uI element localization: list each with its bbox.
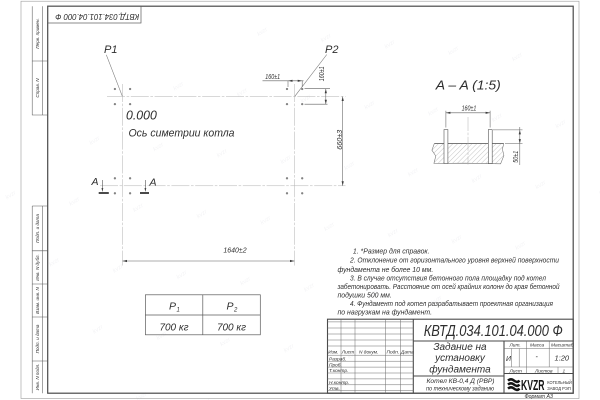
svg-text:50±1: 50±1 <box>513 151 520 163</box>
svg-text:160±1: 160±1 <box>462 105 477 112</box>
svg-text:Листов: Листов <box>534 369 553 375</box>
svg-text:P: P <box>227 301 234 313</box>
svg-text:A – A (1:5): A – A (1:5) <box>435 77 501 92</box>
svg-text:Инв. N дубл.: Инв. N дубл. <box>35 254 40 281</box>
svg-text:Масштаб: Масштаб <box>551 343 574 349</box>
svg-text:2. Отклонение от горизонтально: 2. Отклонение от горизонтального уровня … <box>349 256 559 264</box>
svg-text:660±3: 660±3 <box>337 130 344 150</box>
svg-text:1. *Размер для справок.: 1. *Размер для справок. <box>353 248 430 256</box>
svg-text:Лит.: Лит. <box>509 343 521 349</box>
svg-text:Взам. инв. N: Взам. инв. N <box>35 286 40 313</box>
svg-text:фундамента: фундамента <box>429 363 491 375</box>
svg-text:Котел КВ-0,4 Д (РВР): Котел КВ-0,4 Д (РВР) <box>427 379 495 385</box>
svg-text:ЗАВОД РЭП: ЗАВОД РЭП <box>547 386 571 391</box>
svg-text:P: P <box>169 301 176 313</box>
svg-text:Утв.: Утв. <box>329 386 340 392</box>
svg-text:фундамента не более 10 мм.: фундамента не более 10 мм. <box>338 266 434 274</box>
svg-text:КВТД.034.101.04.000 Ф: КВТД.034.101.04.000 Ф <box>55 12 139 22</box>
svg-text:P1: P1 <box>104 44 117 56</box>
svg-text:Т.контр.: Т.контр. <box>329 368 348 374</box>
svg-text:Инв. N подл.: Инв. N подл. <box>35 364 40 391</box>
svg-text:160±1: 160±1 <box>319 66 326 81</box>
svg-text:A: A <box>149 177 157 189</box>
svg-text:4. Фундамент под котел разраба: 4. Фундамент под котел разрабатывает про… <box>350 300 553 308</box>
svg-text:Перв. примен.: Перв. примен. <box>35 18 40 49</box>
svg-text:A: A <box>91 176 99 188</box>
svg-text:0.000: 0.000 <box>126 107 158 122</box>
svg-text:Лист: Лист <box>509 369 522 375</box>
svg-text:700 кг: 700 кг <box>217 323 246 334</box>
svg-text:3. В случае отсутствия бетонно: 3. В случае отсутствия бетонного пола пл… <box>350 275 546 283</box>
svg-text:по техническому заданию: по техническому заданию <box>426 386 494 392</box>
svg-text:1640±2: 1640±2 <box>223 248 246 255</box>
svg-text:по нагрузкам на фундамент.: по нагрузкам на фундамент. <box>338 308 433 316</box>
svg-text:1:20: 1:20 <box>555 353 570 362</box>
svg-text:Проб.: Проб. <box>329 362 342 368</box>
svg-text:КОТЕЛЬНЫЙ: КОТЕЛЬНЫЙ <box>547 380 572 385</box>
svg-text:Изм.: Изм. <box>328 350 338 356</box>
svg-text:забетонировать. Расстояние от: забетонировать. Расстояние от осей крайн… <box>337 283 560 291</box>
svg-text:1: 1 <box>563 369 566 375</box>
svg-text:Ось симетрии котла: Ось симетрии котла <box>129 128 235 140</box>
svg-text:160±1: 160±1 <box>265 74 280 81</box>
svg-text:Подп.: Подп. <box>387 350 400 356</box>
svg-text:P2: P2 <box>325 44 338 56</box>
svg-text:Задание на: Задание на <box>433 342 487 353</box>
svg-text:KVZR: KVZR <box>521 378 545 394</box>
svg-text:Лист: Лист <box>341 350 354 356</box>
svg-text:Дата: Дата <box>400 350 414 356</box>
svg-text:Справ. N: Справ. N <box>35 78 40 98</box>
svg-text:Формат А3: Формат А3 <box>525 394 553 400</box>
svg-text:N докум.: N докум. <box>359 350 378 356</box>
svg-text:Разраб.: Разраб. <box>329 356 346 362</box>
svg-text:1: 1 <box>177 308 180 314</box>
svg-text:подушки 500 мм.: подушки 500 мм. <box>338 292 392 300</box>
svg-text:КВТД.034.101.04.000 Ф: КВТД.034.101.04.000 Ф <box>424 323 563 340</box>
svg-text:установку: установку <box>434 353 486 364</box>
svg-text:Подп. и дата: Подп. и дата <box>35 324 40 353</box>
svg-text:Масса: Масса <box>530 343 545 349</box>
svg-text:Н.контр.: Н.контр. <box>329 380 349 386</box>
svg-text:2: 2 <box>233 308 238 314</box>
svg-text:Подп. и дата: Подп. и дата <box>35 214 40 243</box>
svg-text:700 кг: 700 кг <box>159 323 188 334</box>
